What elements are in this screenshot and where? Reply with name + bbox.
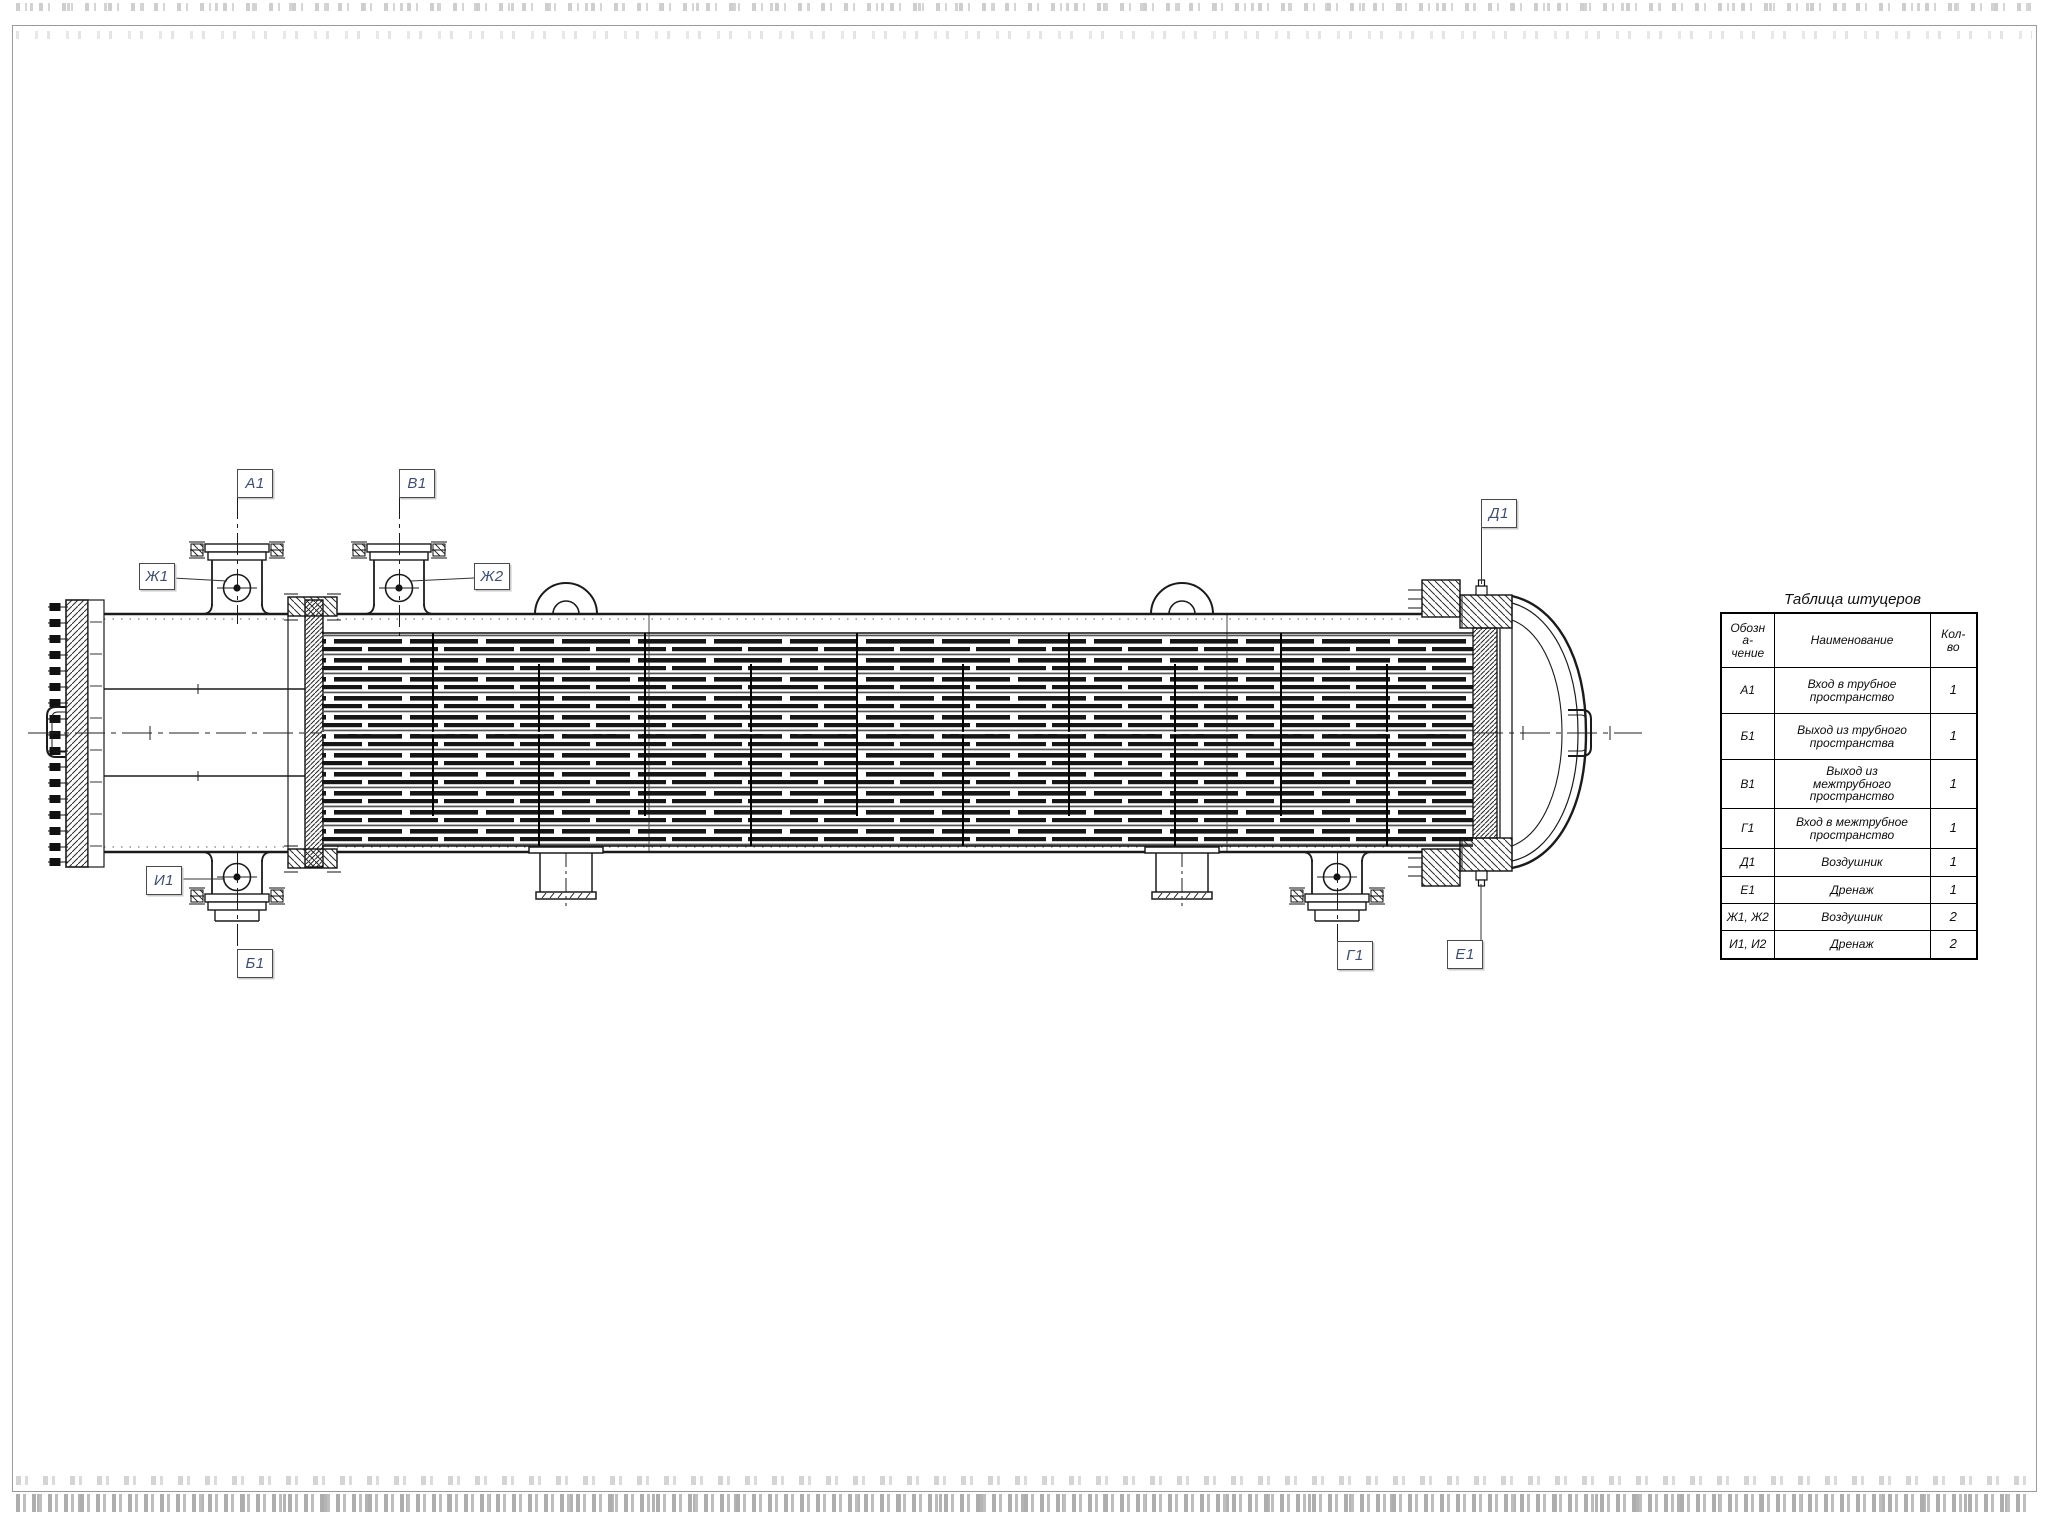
- table-row: Б1 Выход из трубного пространства 1: [1721, 714, 1977, 760]
- header-qty: Кол- во: [1930, 613, 1977, 668]
- row-name-line: Дренаж: [1777, 884, 1928, 897]
- table-row: А1 Вход в трубное пространство 1: [1721, 668, 1977, 714]
- callout-b1-label: В1: [407, 475, 426, 492]
- row-des: Ж1, Ж2: [1721, 904, 1774, 931]
- drawing-sheet: { "table": { "title": "Таблица штуцеров"…: [0, 0, 2048, 1517]
- row-des: И1, И2: [1721, 931, 1774, 960]
- table-header-row: Обозн а- чение Наименование Кол- во: [1721, 613, 1977, 668]
- nozzle-a1: [189, 497, 285, 624]
- tube-bundle: [322, 633, 1473, 846]
- saddle-support-2: [1145, 847, 1219, 906]
- row-qty: 1: [1930, 760, 1977, 809]
- callout-d1-label: Д1: [1489, 505, 1509, 522]
- row-name-line: пространство: [1777, 691, 1928, 704]
- floating-tubesheet: [1473, 628, 1497, 838]
- callout-b1-outlet: Б1: [237, 949, 273, 978]
- table-row: В1 Выход из межтрубного пространство 1: [1721, 760, 1977, 809]
- callout-zh2-label: Ж2: [480, 568, 503, 585]
- row-name: Дренаж: [1774, 877, 1930, 904]
- nozzle-b1-outlet: [189, 852, 285, 949]
- row-qty: 1: [1930, 668, 1977, 714]
- lifting-lug-1: [535, 583, 597, 614]
- row-qty: 2: [1930, 904, 1977, 931]
- row-name: Вход в межтрубное пространство: [1774, 809, 1930, 849]
- callout-i1-label: И1: [154, 872, 174, 889]
- callout-zh1: Ж1: [139, 563, 175, 590]
- row-des: Г1: [1721, 809, 1774, 849]
- callout-e1-label: Е1: [1455, 946, 1474, 963]
- nozzle-b1: [351, 497, 447, 640]
- row-name-line: Вход в межтрубное: [1777, 816, 1928, 829]
- row-name: Дренаж: [1774, 931, 1930, 960]
- table-row: Д1 Воздушник 1: [1721, 849, 1977, 877]
- row-qty: 1: [1930, 849, 1977, 877]
- header-name: Наименование: [1774, 613, 1930, 668]
- table-row: И1, И2 Дренаж 2: [1721, 931, 1977, 960]
- row-name: Выход из межтрубного пространство: [1774, 760, 1930, 809]
- row-name-line: пространства: [1777, 737, 1928, 750]
- table-row: Ж1, Ж2 Воздушник 2: [1721, 904, 1977, 931]
- callout-a1: А1: [237, 469, 273, 498]
- row-name-line: Выход из: [1777, 765, 1928, 778]
- row-name: Воздушник: [1774, 904, 1930, 931]
- callout-a1-label: А1: [245, 475, 264, 492]
- row-name: Вход в трубное пространство: [1774, 668, 1930, 714]
- hdr-qty-line2: во: [1933, 641, 1975, 654]
- lifting-lug-2: [1151, 583, 1213, 614]
- row-name-line: Вход в трубное: [1777, 678, 1928, 691]
- cover-bolts: [48, 604, 68, 866]
- drain-fitting-e1: [1476, 871, 1487, 886]
- row-name-line: Воздушник: [1777, 856, 1928, 869]
- row-qty: 1: [1930, 714, 1977, 760]
- callout-zh2: Ж2: [474, 563, 510, 590]
- header-designation: Обозн а- чение: [1721, 613, 1774, 668]
- row-name-line: Выход из трубного: [1777, 724, 1928, 737]
- row-name-line: пространство: [1777, 790, 1928, 803]
- row-des: А1: [1721, 668, 1774, 714]
- callout-b1-outlet-label: Б1: [245, 955, 264, 972]
- row-des: Б1: [1721, 714, 1774, 760]
- row-des: Е1: [1721, 877, 1774, 904]
- row-des: Д1: [1721, 849, 1774, 877]
- row-name: Выход из трубного пространства: [1774, 714, 1930, 760]
- row-qty: 1: [1930, 877, 1977, 904]
- callout-i1: И1: [146, 866, 182, 895]
- callout-g1-label: Г1: [1346, 947, 1364, 964]
- callout-d1: Д1: [1481, 499, 1517, 528]
- callout-g1: Г1: [1337, 941, 1373, 970]
- callout-e1: Е1: [1447, 940, 1483, 969]
- saddle-support-1: [529, 847, 603, 906]
- row-des: В1: [1721, 760, 1774, 809]
- nozzle-table-title: Таблица штуцеров: [1720, 591, 1985, 608]
- hdr-des-line2: а-: [1724, 634, 1772, 647]
- callout-zh1-label: Ж1: [145, 568, 168, 585]
- row-name-line: пространство: [1777, 829, 1928, 842]
- row-name-line: Воздушник: [1777, 911, 1928, 924]
- callout-b1: В1: [399, 469, 435, 498]
- row-name: Воздушник: [1774, 849, 1930, 877]
- table-row: Е1 Дренаж 1: [1721, 877, 1977, 904]
- row-qty: 1: [1930, 809, 1977, 849]
- row-name-line: Дренаж: [1777, 938, 1928, 951]
- hdr-qty-line1: Кол-: [1933, 628, 1975, 641]
- hdr-des-line3: чение: [1724, 647, 1772, 660]
- nozzle-g1: [1289, 852, 1385, 941]
- row-qty: 2: [1930, 931, 1977, 960]
- nozzle-table: Обозн а- чение Наименование Кол- во А1 В…: [1720, 612, 1978, 960]
- table-row: Г1 Вход в межтрубное пространство 1: [1721, 809, 1977, 849]
